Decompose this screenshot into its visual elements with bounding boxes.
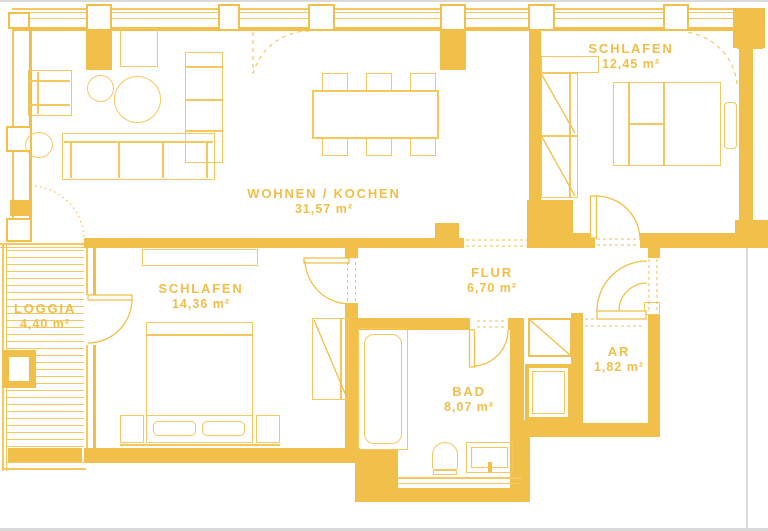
wall-segment [571,423,660,437]
loggia-pillar [2,350,36,388]
loggia-parapet [8,448,82,462]
nightstand [120,415,144,443]
square-table [120,28,158,67]
door-leaf [591,196,597,238]
dining-chair [410,139,436,156]
column [86,30,112,70]
floor-plan: WOHNEN / KOCHEN 31,57 m² SCHLAFEN 12,45 … [0,0,768,531]
room-name: FLUR [467,265,517,281]
window-pillar [218,4,240,31]
bed-pillow-line [147,415,252,416]
window-pillar [440,4,466,31]
room-label-flur: FLUR 6,70 m² [467,265,517,296]
wall-segment [571,313,583,423]
room-label-wohnen-kochen: WOHNEN / KOCHEN 31,57 m² [247,186,400,217]
toilet-cistern [433,470,457,475]
nightstand [724,102,737,149]
room-name: LOGGIA [14,301,76,317]
washing-machine-drum [532,371,565,414]
wall-step [355,450,398,502]
dining-chair [366,139,392,156]
window-band-line [12,8,742,10]
dining-chair [366,73,392,90]
loggia-deck [6,250,84,448]
wall-stub [435,223,459,238]
sink-faucet [488,462,492,472]
door-threshold [477,321,505,327]
door-leaf [304,258,349,263]
wall-segment [573,233,595,248]
wall-east [739,25,753,248]
dining-chair [410,73,436,90]
bed-baseline [120,444,280,446]
wall-corner-block [735,220,768,248]
room-area: 31,57 m² [247,202,400,217]
bed-pillow-divider [629,123,663,125]
wall-corner-block [737,25,763,49]
sideboard-divider [186,66,222,68]
room-area: 12,45 m² [588,57,673,72]
sofa-cushion-divider [118,142,120,178]
bed-pillow-line [663,83,665,165]
entry-door-leaf [597,311,646,319]
room-name: WOHNEN / KOCHEN [247,186,400,202]
armchair-backrest [37,72,39,114]
wall-segment [93,345,96,448]
wardrobe-depth-line [569,74,571,197]
wall-partition [529,30,541,208]
window-band-line [398,483,522,484]
door-swing-arc [475,330,508,366]
wall-segment [10,200,32,216]
room-label-bad: BAD 8,07 m² [444,384,494,415]
window-pillar [528,4,555,31]
page-edge-top [0,0,768,2]
kitchen-sideboard [185,52,223,163]
window-pillar [308,4,335,31]
nightstand [256,415,280,443]
window-band-line [86,345,88,448]
room-label-schlafen-left: SCHLAFEN 14,36 m² [158,281,243,312]
window-pillar [663,4,689,31]
cabinet [142,249,258,266]
window-pillar [6,218,32,242]
armchair-armrest [30,104,70,106]
coffee-table [114,76,161,123]
entry-door-swing-arc [619,283,647,311]
room-area: 8,07 m² [444,400,494,415]
wall-segment [648,248,660,258]
room-area: 14,36 m² [158,297,243,312]
window-pillar [86,4,112,31]
column [440,30,466,70]
wall-segment [84,238,360,248]
wall-segment [510,318,524,434]
loggia-edge [2,468,86,470]
door-swing-arc [88,299,132,343]
door-leaf [88,295,132,300]
wall-segment [345,238,358,258]
window-band-line [86,248,88,295]
sofa-cushion-divider [162,142,164,178]
door-pocket [644,302,660,315]
wall-bottom [84,448,360,463]
door-swing-arc [305,261,350,304]
window-pillar [8,12,30,29]
window-swing-arc [253,31,310,74]
wall-segment [93,248,96,295]
wall-block [527,200,573,248]
wall-segment [648,313,660,437]
installation-shaft [528,318,572,357]
dining-chair [322,139,348,156]
side-table [87,75,114,102]
terrace-door-swing-arc [30,186,84,240]
room-name: SCHLAFEN [158,281,243,297]
wardrobe-divider [542,135,577,137]
door-leaf [470,330,475,367]
wall-segment [358,238,464,248]
pillow [202,421,245,436]
window-glazing-line [12,18,742,19]
room-name: SCHLAFEN [588,41,673,57]
room-area: 6,70 m² [467,281,517,296]
bed-foot-line [147,334,252,336]
wardrobe-depth-line [340,319,342,399]
toilet [432,442,458,470]
bathtub-basin [364,334,402,444]
armchair-armrest [30,80,70,82]
loggia-edge [0,247,88,248]
window-band-line [12,12,742,13]
pillow [153,421,196,436]
window-band-line [398,477,522,479]
door-threshold [348,256,356,303]
room-area: 4,40 m² [14,317,76,332]
passage-threshold [466,240,527,246]
pouf [25,132,53,158]
door-threshold [597,239,639,245]
sliding-door-track [585,319,645,326]
dining-chair [322,73,348,90]
entry-door-swing-arc [597,261,647,311]
sideboard-divider [186,99,222,101]
loggia-edge [0,243,88,245]
room-name: BAD [444,384,494,400]
door-swing-arc [596,196,640,240]
page-edge-right [746,248,748,531]
sideboard-divider [186,130,222,132]
room-label-loggia: LOGGIA 4,40 m² [14,301,76,332]
dining-table [312,90,439,139]
room-area: 1,82 m² [594,360,644,375]
sofa-armrest [70,142,72,178]
wardrobe [312,318,349,400]
wall-bottom [397,488,530,502]
room-name: AR [594,344,644,360]
room-label-ar: AR 1,82 m² [594,344,644,375]
room-label-schlafen-right: SCHLAFEN 12,45 m² [588,41,673,72]
armchair [28,70,72,116]
window-swing-arc [685,32,737,84]
